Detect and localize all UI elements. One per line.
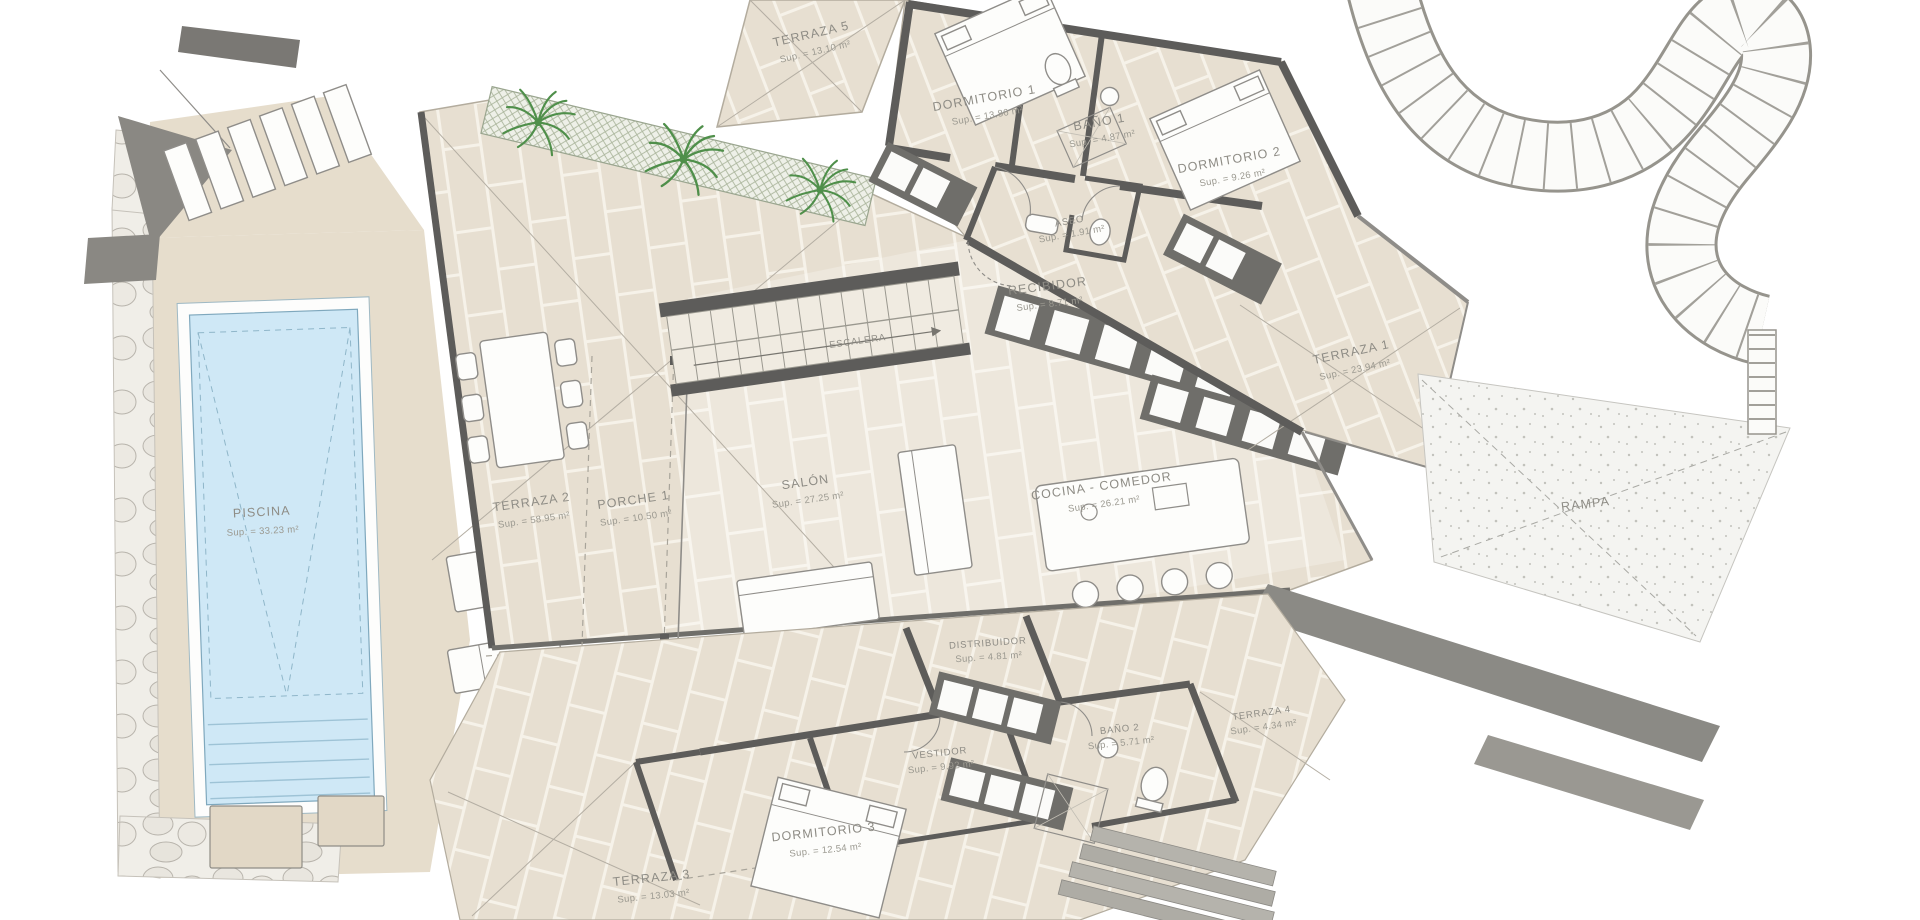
swimming-pool — [177, 297, 387, 817]
ramp-landing — [1748, 330, 1776, 434]
site-structure-1 — [178, 26, 300, 68]
stone-border-left — [112, 208, 160, 878]
terraza-5 — [717, 0, 905, 127]
floor-plan-canvas: TERRAZA 5 Sup. = 13.10 m² DORMITORIO 1 S… — [0, 0, 1920, 920]
pool-water — [190, 309, 375, 805]
floor-plan-drawing: TERRAZA 5 Sup. = 13.10 m² DORMITORIO 1 S… — [0, 0, 1920, 920]
pool-equipment-box-2 — [318, 796, 384, 846]
site-structure-3 — [84, 234, 160, 284]
pool-equipment-box — [210, 806, 302, 868]
